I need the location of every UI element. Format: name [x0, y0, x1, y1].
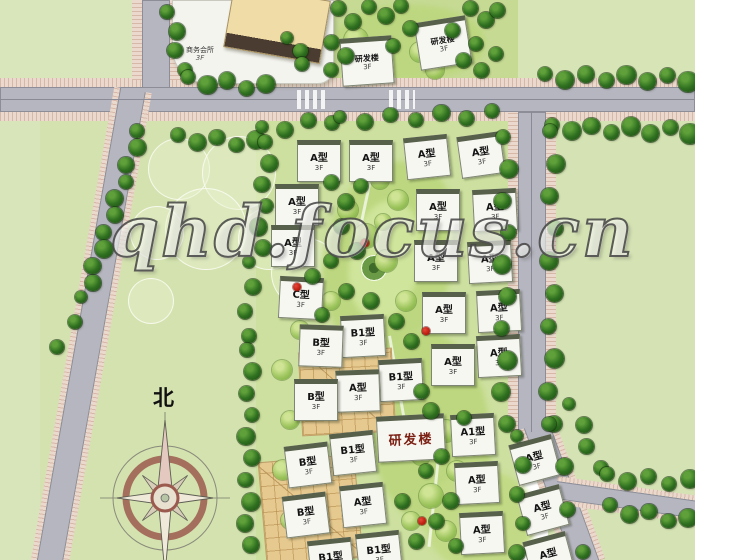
tree-icon [500, 160, 518, 178]
building-floors: 3F [478, 537, 487, 544]
tree-icon [238, 304, 253, 319]
building-floors: 3F [439, 45, 448, 53]
building-floors: 3F [532, 463, 542, 472]
tree-icon [414, 384, 429, 399]
tree-icon [240, 343, 254, 357]
building-floors: 3F [315, 165, 323, 172]
tree-icon [499, 416, 515, 432]
shrub-icon [419, 484, 443, 508]
building-label: A1型 [460, 427, 485, 438]
tree-icon [189, 134, 206, 151]
tree-icon [378, 8, 394, 24]
tree-icon [556, 458, 573, 475]
building-label: C型 [292, 291, 310, 302]
building-floors: 3F [363, 64, 372, 72]
building-floors: 3F [359, 340, 368, 347]
tree-icon [579, 439, 594, 454]
building-B型: B型3F [284, 441, 333, 488]
building-label: A型 [349, 384, 367, 395]
tree-icon [498, 351, 517, 370]
building-label: A型 [288, 198, 306, 208]
tree-icon [619, 473, 636, 490]
building-floors: 3F [440, 317, 448, 324]
building-label: B1型 [350, 328, 375, 339]
tree-icon [389, 314, 404, 329]
tree-icon [542, 417, 556, 431]
red-flower-accent [418, 517, 426, 525]
tree-icon [239, 81, 254, 96]
building-floors: 3F [477, 158, 486, 166]
tree-icon [242, 493, 260, 511]
building-label: A型 [490, 304, 508, 315]
tree-icon [119, 175, 133, 189]
tree-icon [449, 539, 463, 553]
red-flower-accent [422, 327, 430, 335]
tree-icon [324, 35, 339, 50]
building-A型: A型3F [403, 134, 451, 180]
tree-icon [639, 73, 656, 90]
tree-icon [576, 545, 590, 559]
tree-icon [167, 43, 183, 59]
tree-icon [339, 284, 354, 299]
building-B1型: B1型3F [307, 537, 355, 560]
road-top-centerline [0, 99, 695, 100]
tree-icon [578, 66, 594, 82]
tree-icon [395, 494, 410, 509]
building-label: A型 [468, 476, 486, 487]
tree-icon [443, 493, 459, 509]
tree-icon [258, 135, 272, 149]
crosswalk [297, 90, 329, 109]
building-B型: B型3F [294, 379, 338, 421]
tree-icon [334, 219, 349, 234]
tree-icon [84, 258, 100, 274]
building-label: 研发楼 [388, 432, 434, 447]
tree-icon [209, 130, 225, 146]
tree-icon [509, 545, 525, 560]
tree-icon [96, 225, 111, 240]
building-floors: 3F [289, 250, 297, 257]
building-floors: 3F [423, 161, 432, 169]
building-A型: A型3F [459, 511, 505, 555]
tree-icon [541, 188, 557, 204]
tree-icon [409, 113, 422, 126]
tree-icon [85, 275, 100, 290]
building-floors: 3F [491, 214, 500, 221]
tree-icon [242, 329, 255, 342]
tree-icon [281, 32, 293, 44]
tree-icon [510, 487, 525, 502]
tree-icon [324, 254, 338, 268]
tree-icon [622, 117, 641, 136]
tree-icon [547, 155, 565, 173]
tree-icon [576, 417, 592, 433]
building-floors: 3F [316, 350, 325, 357]
compass-rose [100, 408, 230, 560]
club-name: 商务会所 [186, 46, 214, 54]
building-B1型: B1型3F [340, 314, 386, 358]
building-label: A型 [362, 154, 380, 164]
tree-icon [338, 194, 354, 210]
tree-icon [254, 177, 270, 193]
tree-icon [600, 467, 614, 481]
building-floors: 3F [432, 265, 440, 272]
building-floors: 3F [304, 468, 313, 476]
building-floors: 3F [354, 395, 363, 402]
crosswalk [389, 90, 415, 109]
tree-icon [548, 221, 563, 236]
tree-icon [490, 3, 505, 18]
building-floors: 3F [397, 384, 406, 391]
building-floors: 3F [469, 439, 478, 446]
building-label: A型 [427, 254, 445, 264]
tree-icon [245, 279, 261, 295]
shrub-icon [375, 250, 397, 272]
building-label: B型 [312, 339, 330, 350]
tree-icon [459, 111, 474, 126]
tree-icon [494, 193, 510, 209]
tree-icon [324, 63, 338, 77]
building-floors: 3F [375, 557, 384, 560]
tree-icon [445, 23, 460, 38]
landscape-circle [128, 278, 174, 324]
tree-icon [423, 403, 439, 419]
tree-icon [130, 124, 144, 138]
tree-icon [403, 21, 418, 36]
tree-icon [409, 534, 424, 549]
red-flower-accent [361, 239, 369, 247]
tree-icon [583, 118, 599, 134]
site-plan-canvas: 商务会所 3F A型3FA型3FA型3FA型3FA型3FA型3FA型3FA型3F… [0, 0, 750, 560]
tree-icon [489, 47, 503, 61]
tree-icon [331, 1, 346, 16]
building-A型: A型3F [416, 189, 460, 231]
shrub-icon [322, 292, 340, 310]
tree-icon [255, 240, 271, 256]
tree-icon [171, 128, 185, 142]
tree-icon [160, 5, 174, 19]
tree-icon [301, 113, 316, 128]
building-floors: 3F [293, 209, 301, 216]
tree-icon [198, 76, 216, 94]
building-B1型: B1型3F [355, 530, 403, 560]
building-A型: A型3F [414, 240, 458, 282]
tree-icon [662, 477, 676, 491]
tree-icon [229, 138, 243, 152]
tree-icon [75, 291, 87, 303]
shrub-icon [388, 190, 408, 210]
tree-icon [293, 44, 308, 59]
building-label: A型 [435, 306, 453, 316]
club-building-label: 商务会所 3F [186, 46, 214, 63]
tree-icon [362, 0, 376, 14]
building-floors: 3F [434, 214, 442, 221]
tree-icon [604, 125, 619, 140]
building-label: A型 [473, 526, 491, 537]
building-A型: A型3F [431, 344, 475, 386]
tree-icon [419, 464, 433, 478]
tree-icon [621, 506, 638, 523]
building-label: A型 [429, 203, 447, 213]
building-floors: 3F [367, 165, 375, 172]
building-label: B1型 [388, 372, 413, 383]
page-margin [695, 0, 750, 560]
tree-icon [603, 498, 617, 512]
tree-icon [434, 449, 449, 464]
tree-icon [305, 269, 320, 284]
tree-icon [259, 199, 273, 213]
tree-icon [50, 340, 64, 354]
building-A型: A型3F [271, 225, 315, 267]
shrub-icon [375, 214, 391, 230]
tree-icon [599, 73, 614, 88]
tree-icon [295, 57, 309, 71]
tree-icon [501, 225, 516, 240]
building-floors: 3F [540, 513, 550, 522]
tree-icon [493, 255, 512, 274]
building-floors: 3F [349, 457, 358, 465]
tree-icon [237, 428, 254, 445]
tree-icon [469, 37, 483, 51]
tree-icon [324, 175, 339, 190]
tree-icon [492, 383, 510, 401]
tree-icon [169, 23, 186, 40]
shrub-icon [272, 360, 292, 380]
building-floors: 3F [302, 518, 311, 526]
building-floors: 3F [473, 487, 482, 494]
building-floors: 3F [296, 302, 305, 309]
tree-icon [118, 157, 134, 173]
tree-icon [338, 48, 354, 64]
building-A型: A型3F [335, 369, 380, 413]
tree-icon [661, 514, 675, 528]
building-B型: B型3F [298, 324, 343, 368]
red-flower-accent [293, 283, 301, 291]
building-label: A型 [539, 548, 559, 560]
tree-icon [457, 411, 471, 425]
building-label: A型 [444, 358, 462, 368]
tree-icon [383, 108, 398, 123]
tree-icon [243, 537, 258, 552]
building-label: B型 [307, 393, 325, 403]
building-A型: A型3F [275, 184, 319, 226]
tree-icon [386, 39, 400, 53]
building-label: A型 [284, 239, 302, 249]
tree-icon [315, 308, 329, 322]
tree-icon [345, 14, 361, 30]
tree-icon [463, 1, 478, 16]
tree-icon [261, 155, 278, 172]
building-label: B1型 [318, 552, 344, 560]
tree-icon [250, 218, 267, 235]
building-A型: A型3F [349, 140, 393, 182]
tree-icon [539, 383, 557, 401]
building-A型: A型3F [454, 461, 500, 505]
tree-icon [485, 104, 499, 118]
tree-icon [429, 514, 444, 529]
building-floors: 3F [312, 404, 320, 411]
tree-icon [238, 473, 253, 488]
tree-icon [474, 63, 489, 78]
tree-icon [237, 515, 253, 531]
tree-icon [642, 125, 659, 142]
landscape-circle [130, 206, 184, 260]
building-B型: B型3F [282, 491, 331, 538]
tree-icon [456, 53, 471, 68]
tree-icon [363, 293, 379, 309]
building-A型: A型3F [339, 482, 387, 528]
building-floors: 3F [359, 509, 368, 517]
building-floors: 3F [449, 369, 457, 376]
tree-icon [404, 334, 419, 349]
tree-icon [354, 179, 368, 193]
tree-icon [516, 517, 529, 530]
club-floors: 3F [186, 54, 214, 62]
sidewalk-stub-left [132, 0, 142, 80]
shrub-icon [396, 291, 416, 311]
road-right-centerline [531, 112, 532, 432]
building-B1型: B1型3F [329, 430, 377, 476]
building-label: A型 [310, 154, 328, 164]
tree-icon [219, 72, 235, 88]
tree-icon [433, 105, 449, 121]
tree-icon [277, 122, 293, 138]
tree-icon [641, 504, 657, 520]
